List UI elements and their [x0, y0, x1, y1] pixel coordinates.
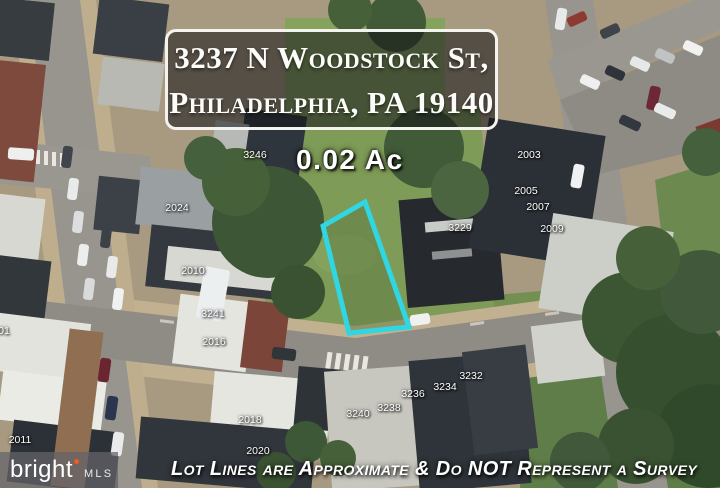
building-roof — [97, 56, 164, 111]
van-white — [8, 147, 35, 161]
brightmls-logo: bright MLS — [0, 452, 118, 488]
building-roof — [0, 0, 55, 61]
logo-dot-icon — [74, 459, 79, 464]
parcel-number-label: 3241 — [201, 308, 224, 320]
address-banner: 3237 N Woodstock St, Philadelphia, PA 19… — [165, 29, 498, 130]
building-roof — [0, 255, 51, 321]
parcel-number-label: 2009 — [540, 223, 563, 235]
lot-area-label: 0.02 Ac — [296, 144, 404, 176]
parcel-number-label: 2016 — [202, 336, 225, 348]
tree — [271, 265, 325, 319]
parcel-number-label: 2011 — [9, 434, 32, 446]
disclaimer-text: Lot Lines are Approximate & Do NOT Repre… — [171, 458, 697, 481]
parcel-number-label: 3234 — [433, 381, 456, 393]
tree — [616, 226, 680, 290]
tree — [431, 161, 489, 219]
parcel-number-label: 3229 — [448, 222, 471, 234]
building-roof — [462, 344, 538, 455]
parcel-number-label: 2018 — [238, 414, 261, 426]
parcel-number-label: 2003 — [517, 149, 540, 161]
parcel-number-label: 3240 — [346, 408, 369, 420]
crosswalk-stripe — [44, 151, 48, 165]
building-roof — [93, 176, 144, 235]
logo-mls-text: MLS — [84, 468, 113, 480]
listing-photo: 3237 N Woodstock St, Philadelphia, PA 19… — [0, 0, 720, 488]
parcel-number-label: 01 — [0, 325, 10, 337]
parcel-number-label: 3232 — [459, 370, 482, 382]
address-line-2: Philadelphia, PA 19140 — [168, 80, 495, 125]
building-roof — [93, 0, 170, 62]
parcel-number-label: 3246 — [243, 149, 266, 161]
parcel-number-label: 2020 — [246, 445, 269, 457]
parcel-number-label: 2005 — [514, 185, 537, 197]
logo-brand-text: bright — [10, 452, 73, 487]
building-roof — [0, 193, 46, 261]
parcel-number-label: 3238 — [377, 402, 400, 414]
crosswalk-stripe — [52, 152, 56, 166]
tree — [184, 136, 228, 180]
parcel-number-label: 2024 — [165, 202, 188, 214]
address-line-1: 3237 N Woodstock St, — [168, 35, 495, 80]
parcel-number-label: 3236 — [401, 388, 424, 400]
parcel-number-label: 2007 — [526, 201, 549, 213]
parcel-number-label: 2010 — [181, 265, 204, 277]
